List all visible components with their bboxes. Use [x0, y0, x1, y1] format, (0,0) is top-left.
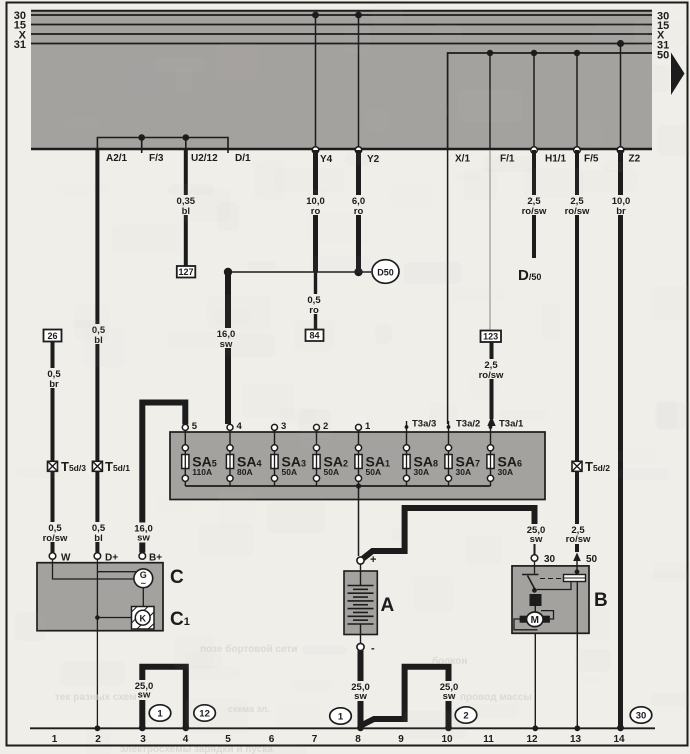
- svg-text:1: 1: [338, 712, 344, 723]
- svg-text:W: W: [61, 553, 71, 564]
- svg-text:ro/sw: ro/sw: [43, 533, 68, 544]
- svg-text:5: 5: [192, 421, 198, 432]
- svg-text:123: 123: [483, 332, 498, 342]
- svg-text:sw: sw: [137, 533, 150, 544]
- svg-text:ro/sw: ro/sw: [565, 206, 590, 217]
- svg-text:26: 26: [47, 331, 57, 341]
- svg-text:30: 30: [544, 554, 556, 565]
- svg-text:13: 13: [570, 734, 582, 745]
- svg-text:31: 31: [14, 39, 26, 51]
- svg-text:8: 8: [355, 734, 361, 745]
- svg-text:50A: 50A: [366, 467, 382, 477]
- svg-text:sw: sw: [530, 534, 543, 545]
- svg-text:ro/sw: ro/sw: [566, 534, 591, 545]
- svg-text:sw: sw: [138, 690, 151, 701]
- svg-text:11: 11: [483, 734, 494, 745]
- svg-text:ro: ro: [309, 305, 319, 316]
- svg-text:1: 1: [52, 734, 58, 745]
- svg-text:br: br: [616, 206, 626, 217]
- svg-text:1: 1: [365, 421, 371, 432]
- svg-text:9: 9: [398, 734, 404, 745]
- svg-text:болкон: болкон: [432, 655, 467, 667]
- svg-text:30A: 30A: [414, 467, 430, 477]
- svg-text:T3a/1: T3a/1: [499, 419, 524, 430]
- svg-text:D/1: D/1: [235, 153, 251, 164]
- svg-text:H1/1: H1/1: [545, 154, 567, 165]
- svg-text:12: 12: [526, 734, 538, 745]
- svg-text:110A: 110A: [192, 467, 212, 477]
- svg-text:sw: sw: [354, 691, 367, 702]
- svg-text:провод массы: провод массы: [460, 692, 532, 703]
- svg-text:50: 50: [657, 49, 669, 61]
- svg-text:C: C: [170, 567, 184, 588]
- svg-text:sw: sw: [443, 691, 456, 702]
- svg-text:1: 1: [157, 709, 163, 720]
- svg-text:-: -: [371, 643, 375, 655]
- svg-text:U2/12: U2/12: [191, 153, 218, 164]
- svg-text:4: 4: [237, 421, 243, 432]
- svg-text:7: 7: [312, 734, 318, 745]
- svg-text:электросхемы зарядки и пуска: электросхемы зарядки и пуска: [120, 744, 273, 754]
- svg-text:B+: B+: [149, 553, 162, 564]
- svg-text:K: K: [139, 613, 146, 623]
- svg-text:D50: D50: [377, 268, 394, 278]
- svg-text:A: A: [381, 595, 395, 616]
- svg-text:T3a/2: T3a/2: [456, 419, 480, 430]
- svg-text:ro/sw: ro/sw: [522, 206, 547, 217]
- svg-text:тек разных схем: тек разных схем: [55, 692, 137, 703]
- svg-text:80A: 80A: [237, 467, 253, 477]
- svg-text:bl: bl: [94, 533, 102, 544]
- svg-text:14: 14: [613, 734, 625, 745]
- svg-text:30: 30: [636, 711, 647, 722]
- svg-text:127: 127: [178, 267, 193, 277]
- svg-text:30A: 30A: [456, 467, 472, 477]
- svg-text:F/3: F/3: [149, 153, 164, 164]
- svg-text:Y4: Y4: [320, 154, 333, 165]
- svg-text:M: M: [531, 615, 539, 626]
- svg-text:X/1: X/1: [455, 154, 470, 165]
- svg-text:A2/1: A2/1: [106, 153, 128, 164]
- svg-text:30A: 30A: [498, 467, 514, 477]
- svg-text:br: br: [49, 379, 59, 390]
- svg-text:F/5: F/5: [584, 154, 599, 165]
- svg-text:50: 50: [586, 554, 598, 565]
